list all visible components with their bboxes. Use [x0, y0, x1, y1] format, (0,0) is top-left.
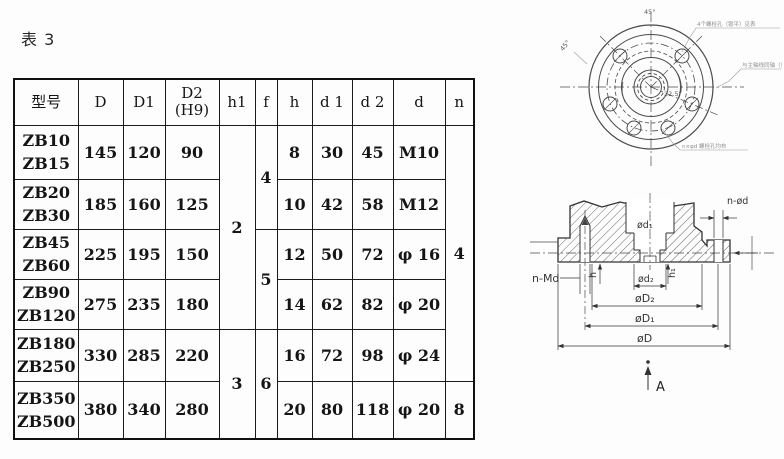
view-point [646, 360, 650, 364]
label-D1: øD₁ [635, 312, 655, 325]
leader-left [574, 52, 587, 64]
cell-model: ZB45 ZB60 [14, 229, 78, 279]
cell-h: 12 [277, 229, 312, 279]
header-f: f [255, 79, 277, 125]
cell-h: 14 [277, 279, 312, 329]
cell-n-merged: 4 [445, 125, 474, 381]
cell-D2: 180 [165, 279, 219, 329]
table-row: ZB180 ZB250 330 285 220 3 6 16 72 98 φ 2… [14, 329, 474, 381]
cell-model: ZB20 ZB30 [14, 179, 78, 229]
cell-D2: 90 [165, 125, 219, 179]
cell-D2: 125 [165, 179, 219, 229]
cell-d1: 62 [312, 279, 352, 329]
label-D2: øD₂ [635, 292, 655, 305]
header-d1: d 1 [312, 79, 352, 125]
label-h: h [588, 272, 599, 278]
cell-h1-merged: 2 [219, 125, 255, 329]
label-h1: h₁ [667, 268, 678, 278]
cell-d2: 98 [352, 329, 393, 381]
cell-d: φ 20 [393, 279, 445, 329]
header-model: 型号 [14, 79, 78, 125]
cell-D1: 340 [123, 381, 165, 439]
cell-d2: 45 [352, 125, 393, 179]
cell-h1-merged: 3 [219, 329, 255, 439]
cell-model: ZB90 ZB120 [14, 279, 78, 329]
cell-model: ZB10 ZB15 [14, 125, 78, 179]
bolt-hole-cutout [714, 240, 723, 262]
cell-h: 8 [277, 125, 312, 179]
cell-d1: 50 [312, 229, 352, 279]
cell-d2: 82 [352, 279, 393, 329]
label-d1: ød₁ [637, 220, 653, 231]
cell-f-merged: 4 [255, 125, 277, 229]
annotation-right: 与主轴线同轴（见表） [742, 61, 782, 69]
cell-h: 16 [277, 329, 312, 381]
cell-d: φ 16 [393, 229, 445, 279]
angle-label-top: 45° [644, 8, 656, 16]
cell-d2: 118 [352, 381, 393, 439]
header-D2: D2 (H9) [165, 79, 219, 125]
cell-d1: 72 [312, 329, 352, 381]
table-header-row: 型号 D D1 D2 (H9) h1 f h d 1 d 2 d n [14, 79, 474, 125]
annotation-bottom: n×φd 螺栓孔均布 [682, 142, 727, 150]
cell-d1: 30 [312, 125, 352, 179]
cell-D1: 235 [123, 279, 165, 329]
cell-f-merged: 6 [255, 329, 277, 439]
cell-D1: 160 [123, 179, 165, 229]
cell-d: M12 [393, 179, 445, 229]
cell-D2: 150 [165, 229, 219, 279]
leader-top-right [682, 28, 696, 52]
spec-table: 型号 D D1 D2 (H9) h1 f h d 1 d 2 d n ZB10 … [13, 78, 475, 440]
cell-model: ZB180 ZB250 [14, 329, 78, 381]
cell-model: ZB350 ZB500 [14, 381, 78, 439]
label-n-Md: n-Md [532, 272, 559, 285]
angle-label-left: 45° [558, 39, 572, 53]
header-D1: D1 [123, 79, 165, 125]
cell-d1: 80 [312, 381, 352, 439]
cell-n: 8 [445, 381, 474, 439]
cell-D: 330 [78, 329, 123, 381]
label-n-od: n-ød [727, 196, 748, 207]
view-arrowhead [645, 366, 652, 375]
label-D: øD [637, 332, 652, 345]
cell-D: 145 [78, 125, 123, 179]
cell-D1: 120 [123, 125, 165, 179]
cell-f-merged: 5 [255, 229, 277, 329]
header-h: h [277, 79, 312, 125]
annotation-top-right: 4个螺栓孔（锪平）见表 [697, 20, 756, 28]
angle-label-22-5: 22.5° [664, 90, 682, 98]
table-row: ZB10 ZB15 145 120 90 2 4 8 30 45 M10 4 [14, 125, 474, 179]
header-h1: h1 [219, 79, 255, 125]
cell-D: 380 [78, 381, 123, 439]
header-n: n [445, 79, 474, 125]
cell-D: 185 [78, 179, 123, 229]
label-d2: ød₂ [638, 274, 654, 285]
section-view-drawing: ød₁ n-ød n-Md h h₁ ød₂ øD₂ øD₁ øD A [530, 190, 782, 415]
cell-d2: 58 [352, 179, 393, 229]
cell-D1: 285 [123, 329, 165, 381]
cell-d1: 42 [312, 179, 352, 229]
cell-h: 20 [277, 381, 312, 439]
cell-d: M10 [393, 125, 445, 179]
view-arrow-A [645, 360, 652, 390]
cell-h: 10 [277, 179, 312, 229]
cell-d2: 72 [352, 229, 393, 279]
cell-d: φ 24 [393, 329, 445, 381]
cell-D2: 220 [165, 329, 219, 381]
cell-D: 275 [78, 279, 123, 329]
page-title: 表 3 [21, 26, 55, 50]
cell-D1: 195 [123, 229, 165, 279]
cell-D2: 280 [165, 381, 219, 439]
leader-right [716, 69, 741, 88]
header-d: d [393, 79, 445, 125]
header-d2: d 2 [352, 79, 393, 125]
cell-D: 225 [78, 229, 123, 279]
front-view-drawing: 45° 22.5° 45° 4个螺栓孔（锪平）见表 与主轴线同轴（见表） n×φ… [530, 2, 782, 180]
label-view-A: A [656, 380, 665, 395]
cell-d: φ 20 [393, 381, 445, 439]
header-D: D [78, 79, 123, 125]
